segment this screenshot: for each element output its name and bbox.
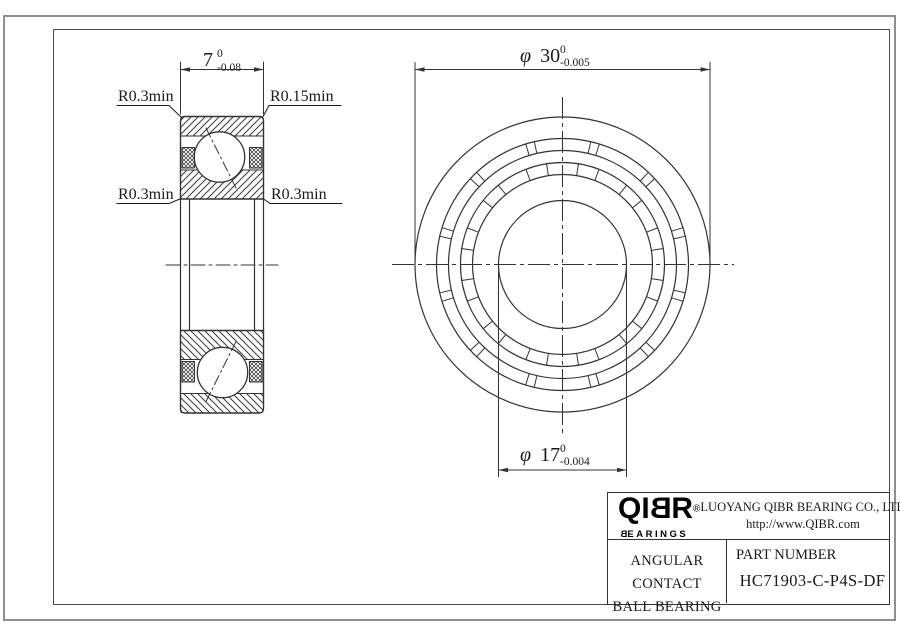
- logo-text: QIBR: [618, 492, 693, 525]
- dim-width-tol-lower: -0.08: [217, 62, 241, 74]
- company-logo: QIBR® BEARINGS: [608, 493, 700, 539]
- ball-top: [194, 132, 244, 182]
- dim-width-value: 7: [203, 49, 213, 71]
- dim-bore-symbol: φ: [520, 444, 531, 466]
- title-block-detail-row: ANGULAR CONTACT BALL BEARING PART NUMBER…: [608, 540, 889, 603]
- product-type-cell: ANGULAR CONTACT BALL BEARING: [608, 540, 727, 603]
- cage-section-top-left: [182, 148, 195, 169]
- label-fillet-mid-right: R0.3min: [271, 186, 327, 203]
- svg-text:φ 30: φ 30: [520, 45, 560, 67]
- part-number-label: PART NUMBER: [736, 547, 889, 564]
- dim-bore-tol-upper: 0: [560, 443, 566, 455]
- part-number-value: HC71903-C-P4S-DF: [736, 571, 889, 591]
- product-type-line1: ANGULAR CONTACT: [608, 550, 726, 596]
- label-fillet-top-right: R0.15min: [270, 88, 334, 105]
- dim-outer-tol-lower: -0.005: [560, 57, 590, 69]
- company-website: http://www.QIBR.com: [700, 516, 900, 533]
- registered-trademark-icon: ®: [693, 504, 700, 515]
- section-upper-half: [181, 117, 264, 200]
- cage-section-bottom-right: [250, 362, 263, 383]
- company-name: LUOYANG QIBR BEARING CO., LTD: [700, 499, 900, 516]
- dim-outer-tol-upper: 0: [560, 44, 566, 56]
- section-lower-half: [181, 331, 264, 414]
- title-block-header-row: QIBR® BEARINGS LUOYANG QIBR BEARING CO.,…: [608, 493, 889, 540]
- title-block: QIBR® BEARINGS LUOYANG QIBR BEARING CO.,…: [607, 492, 890, 605]
- dim-outer-diameter: φ 30 0 -0.005: [415, 44, 710, 263]
- logo-subtext: BEARINGS: [618, 529, 700, 540]
- front-view: φ 30 0 -0.005 φ 17 0 -0.004: [392, 44, 734, 477]
- dim-width: 7 0 -0.08: [181, 48, 264, 114]
- drawing-sheet: 7 0 -0.08 R0.3min R0.15min R0.3min R0.3m…: [0, 0, 900, 636]
- dim-bore-value: 17: [540, 444, 560, 466]
- svg-text:φ 17: φ 17: [520, 444, 560, 466]
- dim-width-tol-upper: 0: [217, 48, 223, 60]
- dim-outer-value: 30: [540, 45, 560, 67]
- dim-bore-tol-lower: -0.004: [560, 456, 590, 468]
- cage-section-top-right: [250, 148, 263, 169]
- label-fillet-top-left: R0.3min: [118, 88, 174, 105]
- part-number-cell: PART NUMBER HC71903-C-P4S-DF: [727, 540, 889, 603]
- dim-outer-symbol: φ: [520, 45, 531, 67]
- company-info: LUOYANG QIBR BEARING CO., LTD http://www…: [700, 493, 900, 539]
- label-fillet-mid-left: R0.3min: [118, 186, 174, 203]
- ball-bottom: [197, 347, 247, 397]
- cage-section-bottom-left: [182, 362, 195, 383]
- product-type-line2: BALL BEARING: [608, 596, 726, 619]
- side-section-view: 7 0 -0.08 R0.3min R0.15min R0.3min R0.3m…: [117, 48, 342, 413]
